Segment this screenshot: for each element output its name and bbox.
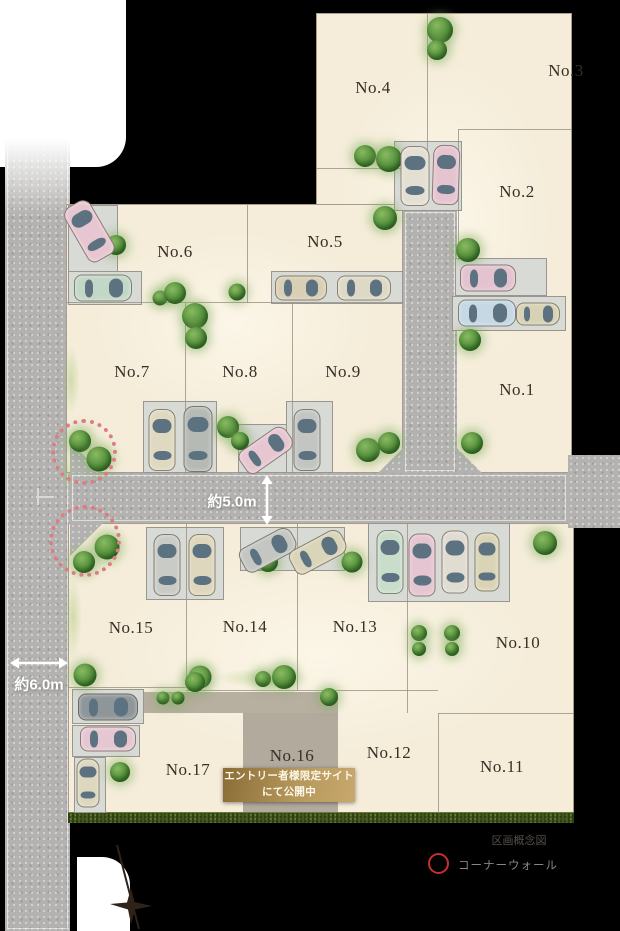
tree	[342, 552, 363, 573]
lot-label-no15: No.15	[109, 618, 154, 638]
car	[294, 409, 321, 471]
car-windshield	[543, 306, 553, 322]
lot-label-no2: No.2	[499, 182, 535, 202]
car	[458, 300, 516, 327]
car-windshield	[269, 532, 290, 556]
car-rear-window	[86, 235, 108, 253]
grass-patch	[62, 345, 80, 415]
car	[154, 534, 181, 596]
car-windshield	[412, 544, 432, 559]
lot-label-no8: No.8	[222, 362, 258, 382]
lot-label-no9: No.9	[325, 362, 361, 382]
entry-limited-banner: エントリー者様限定サイト にて公開中	[223, 768, 355, 802]
tree	[272, 665, 296, 689]
road-fade	[5, 128, 70, 216]
tree	[74, 664, 97, 687]
corner-wall-circle	[49, 505, 121, 577]
corner-wall-legend-label: コーナーウォール	[458, 857, 558, 873]
car-rear-window	[413, 576, 431, 585]
car-rear-window	[89, 698, 98, 716]
car	[460, 265, 516, 292]
corner-wall-circle	[51, 419, 117, 485]
site-plan-map: No.1No.2No.3No.4No.5No.6No.7No.8No.9No.1…	[0, 0, 620, 931]
tree	[411, 625, 427, 641]
road-horizontal	[70, 473, 568, 523]
car-windshield	[404, 156, 425, 170]
road-horizontal-end	[568, 455, 620, 528]
car-windshield	[109, 278, 122, 298]
car-rear-window	[153, 451, 171, 460]
lot-label-no5: No.5	[307, 232, 343, 252]
car-rear-window	[85, 279, 93, 297]
tree	[427, 17, 453, 43]
tree	[229, 284, 246, 301]
lot-label-no1: No.1	[499, 380, 535, 400]
car	[431, 145, 460, 206]
car-windshield	[297, 419, 317, 433]
lot-label-no10: No.10	[496, 633, 541, 653]
car	[77, 759, 100, 808]
tree	[172, 692, 185, 705]
banner-line1: エントリー者様限定サイト	[223, 769, 355, 785]
car-rear-window	[298, 451, 316, 460]
car-windshield	[445, 541, 465, 556]
lot-label-no14: No.14	[223, 617, 268, 637]
lot-label-no11: No.11	[480, 757, 524, 777]
car-rear-window	[158, 576, 176, 585]
tree	[533, 531, 557, 555]
car	[74, 275, 132, 302]
car-windshield	[114, 730, 127, 748]
vertical-double-arrow-icon	[258, 475, 276, 525]
car	[377, 530, 404, 594]
tree	[459, 329, 481, 351]
tree	[445, 642, 459, 656]
car-windshield	[307, 279, 319, 297]
car-windshield	[69, 207, 95, 230]
boundary-line	[438, 713, 439, 813]
car-windshield	[114, 697, 128, 717]
boundary-line	[66, 302, 403, 303]
lot-label-no12: No.12	[367, 743, 412, 763]
tree	[378, 432, 400, 454]
hedge-strip	[68, 812, 574, 823]
tree	[412, 642, 426, 656]
car-windshield	[157, 544, 177, 558]
car-rear-window	[436, 185, 454, 194]
car	[409, 534, 436, 597]
car	[275, 276, 327, 301]
tree	[185, 672, 205, 692]
car-windshield	[436, 154, 456, 169]
car-rear-window	[470, 269, 478, 287]
tree	[373, 206, 397, 230]
car	[149, 409, 176, 471]
car-windshield	[80, 767, 96, 778]
boundary-line	[247, 205, 248, 303]
boundary-line	[427, 14, 428, 169]
tree	[157, 692, 170, 705]
car	[189, 534, 216, 596]
car-rear-window	[479, 572, 496, 581]
car-rear-window	[405, 186, 424, 195]
horizontal-double-arrow-icon	[10, 655, 68, 671]
car-windshield	[152, 419, 172, 433]
car-rear-window	[381, 573, 399, 582]
car-rear-window	[193, 576, 211, 585]
tree	[164, 282, 186, 304]
tree	[444, 625, 460, 641]
car-rear-window	[297, 549, 313, 569]
tree	[182, 303, 208, 329]
boundary-line	[68, 687, 186, 688]
banner-line2: にて公開中	[223, 785, 355, 801]
lot-label-no17: No.17	[166, 760, 211, 780]
tree	[456, 238, 480, 262]
boundary-line	[186, 523, 187, 687]
tree	[255, 671, 271, 687]
lot-label-no13: No.13	[333, 617, 378, 637]
car	[516, 303, 560, 326]
car-rear-window	[80, 791, 95, 798]
corner-wall-legend-icon	[428, 853, 449, 874]
car-rear-window	[247, 547, 263, 567]
car-rear-window	[90, 731, 98, 748]
boundary-line	[458, 129, 572, 130]
lot-label-no7: No.7	[114, 362, 150, 382]
boundary-line	[186, 690, 438, 691]
road-width-label-center: 約5.0m	[207, 491, 256, 512]
car-windshield	[380, 540, 400, 555]
road-mark	[37, 488, 39, 505]
road-vertical	[403, 210, 457, 473]
car	[475, 533, 500, 592]
car-windshield	[493, 303, 506, 323]
car-rear-window	[524, 306, 530, 321]
road-width-label-left: 約6.0m	[14, 674, 63, 695]
tree	[354, 145, 376, 167]
car	[184, 406, 213, 472]
tree	[320, 688, 338, 706]
car	[80, 727, 136, 752]
tree	[461, 432, 483, 454]
car-windshield	[478, 542, 496, 556]
lot-label-no6: No.6	[157, 242, 193, 262]
car-rear-window	[446, 573, 464, 582]
car-rear-window	[347, 280, 355, 297]
car-windshield	[187, 417, 208, 432]
car-rear-window	[469, 304, 477, 322]
car-windshield	[319, 534, 340, 558]
tree	[110, 762, 130, 782]
car-windshield	[265, 431, 287, 454]
lot-label-no4: No.4	[355, 78, 391, 98]
boundary-line	[438, 713, 574, 714]
car	[442, 531, 469, 594]
car-windshield	[192, 544, 212, 558]
car-rear-window	[188, 451, 207, 461]
lot-label-no3: No.3	[548, 61, 584, 81]
car-windshield	[494, 268, 507, 288]
compass-icon	[108, 840, 154, 931]
grass-patch	[64, 575, 82, 660]
lot-label-no16: No.16	[270, 746, 315, 766]
tree	[427, 40, 447, 60]
tree	[356, 438, 380, 462]
tree	[376, 146, 402, 172]
car	[401, 146, 430, 206]
tree	[185, 327, 207, 349]
car	[78, 694, 138, 721]
car-windshield	[370, 279, 382, 297]
car-rear-window	[246, 448, 263, 467]
car	[337, 276, 391, 301]
car-rear-window	[285, 280, 293, 297]
map-type-label: 区画概念図	[469, 832, 569, 848]
